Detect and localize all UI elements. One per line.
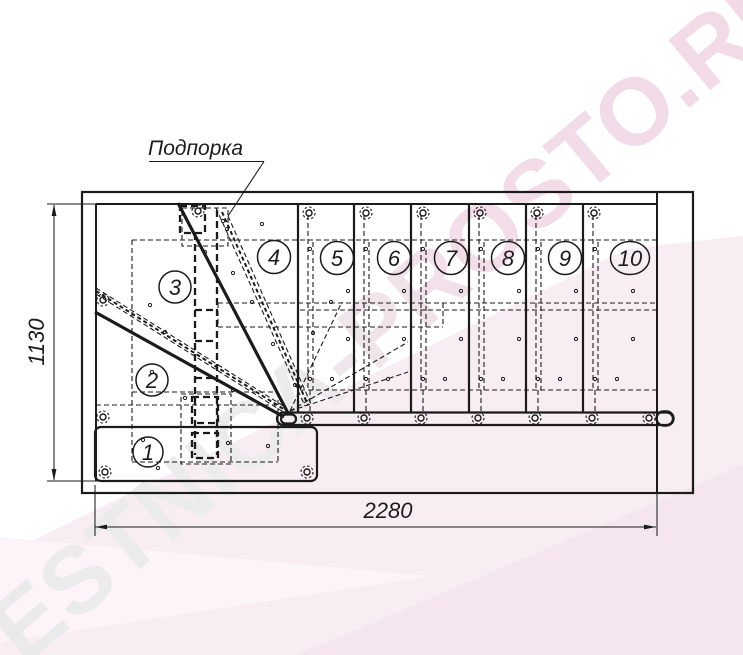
staircase-plan-page: LESTNICA-PROSTO.RU [0,0,743,655]
step-number-2: 2 [137,368,167,394]
support-label: Подпорка [148,137,243,161]
step-number-10: 10 [610,246,650,272]
dimension-length-value: 2280 [338,498,438,524]
step-number-1: 1 [133,440,163,466]
step-balloons [133,241,650,468]
winder-riser-lines [95,203,289,417]
step-number-7: 7 [436,246,466,272]
step-number-3: 3 [160,275,190,301]
staircase-drawing [0,0,743,655]
dimension-width-value: 1130 [24,300,52,384]
step-number-4: 4 [259,245,289,271]
step-number-6: 6 [379,246,409,272]
step-number-9: 9 [550,246,580,272]
step-number-8: 8 [493,246,523,272]
bottom-landing-plate [95,427,317,481]
step-number-5: 5 [322,246,352,272]
